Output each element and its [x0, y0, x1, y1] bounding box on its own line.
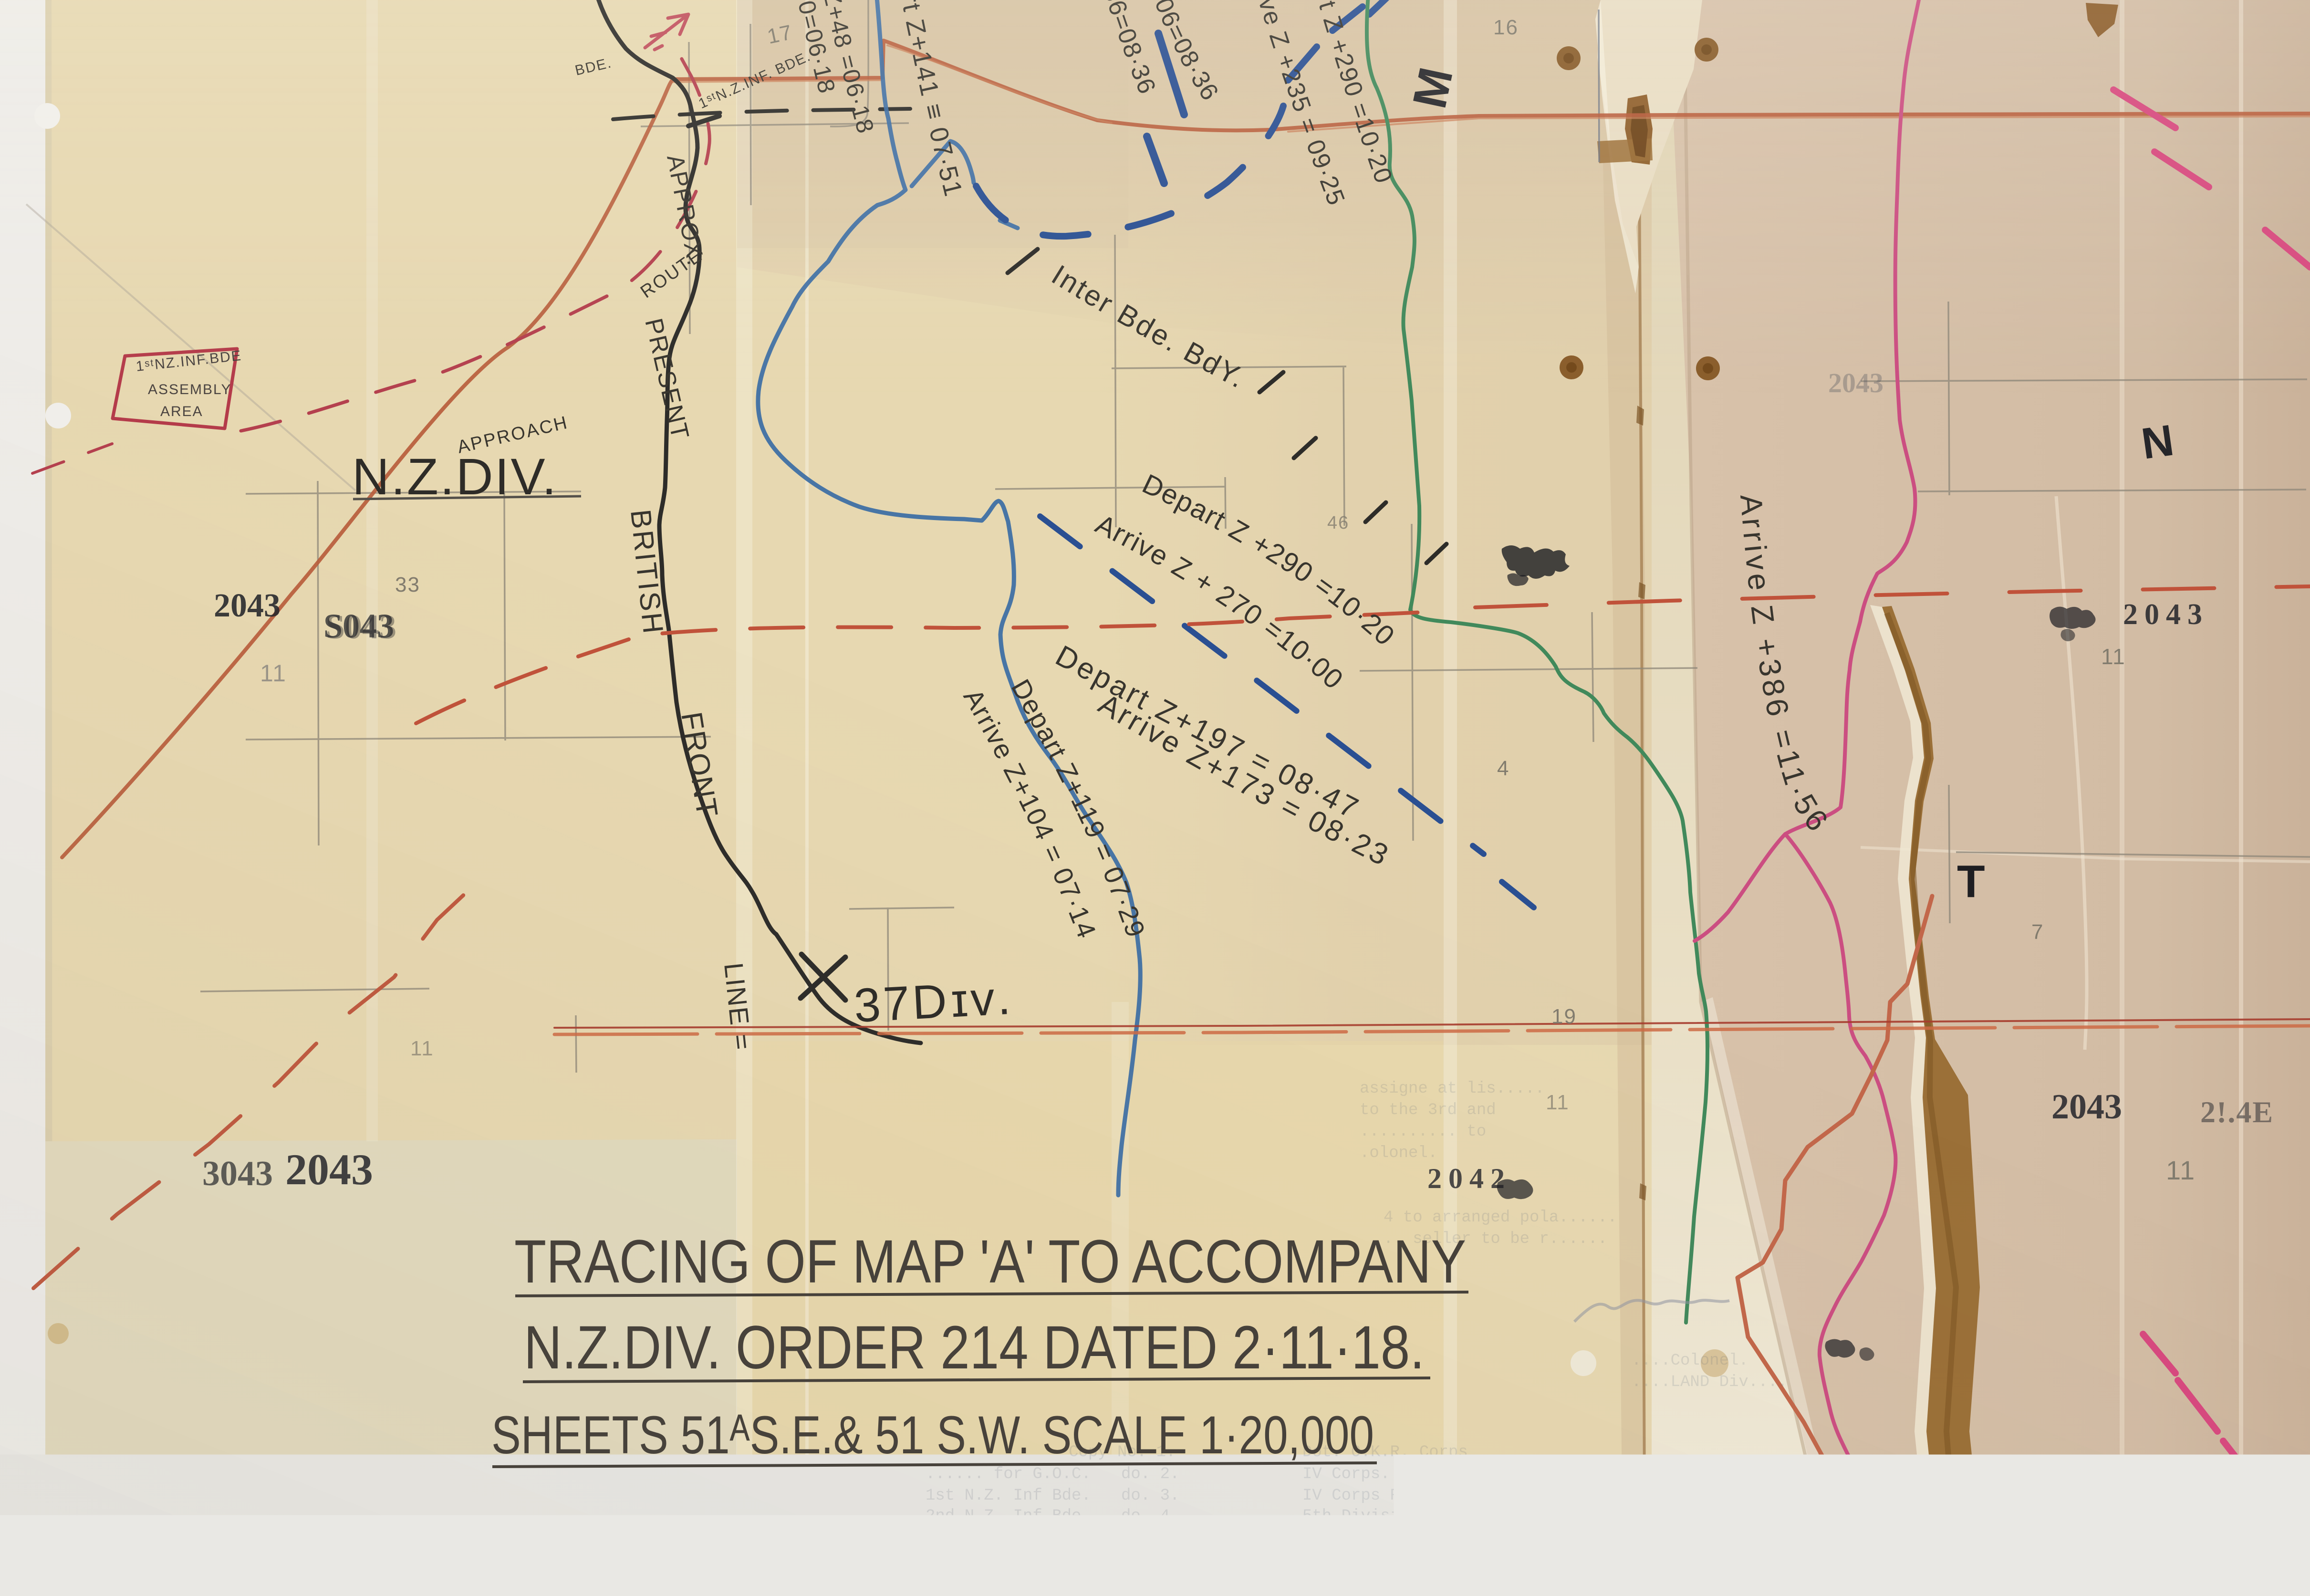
svg-text:IV Corps R.A.: IV Corps R.A. — [1302, 1487, 1429, 1505]
svg-text:T: T — [1957, 856, 1986, 907]
svg-text:11: 11 — [260, 660, 287, 687]
svg-text:37th Division.: 37th Division. — [1302, 1527, 1439, 1545]
svg-text:7: 7 — [2031, 920, 2044, 944]
svg-text:AREA: AREA — [160, 404, 203, 419]
svg-text:11: 11 — [410, 1037, 434, 1060]
svg-text:do. 2.: do. 2. — [1121, 1465, 1179, 1483]
svg-text:do. 3.: do. 3. — [1121, 1487, 1179, 1505]
svg-text:33: 33 — [395, 573, 420, 596]
svg-text:do.: do. — [1889, 1579, 1920, 1596]
svg-text:42nd Division.: 42nd Division. — [1302, 1546, 1439, 1565]
svg-text:.......... to: .......... to — [1360, 1123, 1486, 1141]
svg-text:1st N.Z. Inf Bde.: 1st N.Z. Inf Bde. — [926, 1487, 1091, 1505]
svg-text:4 to arranged pola......: 4 to arranged pola...... — [1384, 1209, 1617, 1227]
svg-text:11: 11 — [2101, 644, 2126, 669]
svg-text:11: 11 — [1546, 1091, 1570, 1114]
svg-text:SHEETS 51ᴬS.E.& 51 S.W. SCALE: SHEETS 51ᴬS.E.& 51 S.W. SCALE 1·20,000 — [491, 1405, 1374, 1465]
svg-text:C.R.E.: C.R.E. — [979, 1571, 1041, 1590]
svg-text:11: 11 — [2166, 1155, 2196, 1185]
svg-text:...... for G.O.C.: ...... for G.O.C. — [926, 1465, 1091, 1483]
svg-text:2043: 2043 — [214, 587, 281, 624]
svg-text:4: 4 — [1497, 757, 1509, 780]
svg-text:N: N — [2139, 416, 2178, 469]
svg-text:N.Z.M.G. Battalion: N.Z.M.G. Battalion — [926, 1546, 1101, 1565]
svg-text:2043: 2043 — [2123, 598, 2209, 631]
svg-text:IV Corps.: IV Corps. — [1302, 1465, 1390, 1483]
svg-text:3rd N.Z. (R) Bd..: 3rd N.Z. (R) Bd.. — [926, 1527, 1091, 1545]
svg-text:do. 5.: do. 5. — [1121, 1527, 1179, 1545]
svg-text:2nd N.Z. Inf Bde.: 2nd N.Z. Inf Bde. — [926, 1507, 1091, 1525]
svg-text:2043: 2043 — [1828, 367, 1883, 398]
svg-text:19: 19 — [1551, 1005, 1577, 1028]
svg-text:do. 4.: do. 4. — [1121, 1507, 1179, 1525]
svg-text:assigne at lis.....: assigne at lis..... — [1360, 1080, 1545, 1098]
svg-text:TRACING OF MAP 'A' TO ACCOMPAN: TRACING OF MAP 'A' TO ACCOMPANY — [514, 1228, 1466, 1296]
svg-text:16: 16 — [1493, 16, 1519, 39]
svg-text:2043: 2043 — [2051, 1087, 2122, 1127]
svg-text:to the 3rd and: to the 3rd and — [1360, 1101, 1496, 1119]
svg-text:....Colonel.: ....Colonel. — [1632, 1352, 1748, 1370]
svg-text:46: 46 — [1327, 513, 1349, 533]
svg-text:S043: S043 — [326, 608, 396, 646]
svg-text:N.Z.DIV. ORDER 214 DATED 2·11: N.Z.DIV. ORDER 214 DATED 2·11·18. — [524, 1314, 1425, 1382]
svg-text:3043: 3043 — [202, 1154, 273, 1193]
svg-text:do. 6.: do. 6. — [1121, 1546, 1179, 1565]
svg-text:ASSEMBLY: ASSEMBLY — [148, 382, 232, 397]
svg-text:do. 10. 59th Sqd. R.A.F.: do. 10. 59th Sqd. R.A.F. — [1379, 1575, 1626, 1594]
svg-text:5th Division.: 5th Division. — [1302, 1507, 1429, 1525]
svg-text:Signals.: Signals. — [1121, 1578, 1204, 1596]
svg-text:.olonel.: .olonel. — [1360, 1144, 1437, 1162]
svg-text:....LAND Div....: ....LAND Div.... — [1632, 1373, 1787, 1391]
svg-text:2!.4E: 2!.4E — [2200, 1095, 2274, 1129]
svg-text:2043: 2043 — [285, 1145, 373, 1194]
svg-text:37D​ɪᴠ.: 37D​ɪᴠ. — [853, 971, 1012, 1033]
